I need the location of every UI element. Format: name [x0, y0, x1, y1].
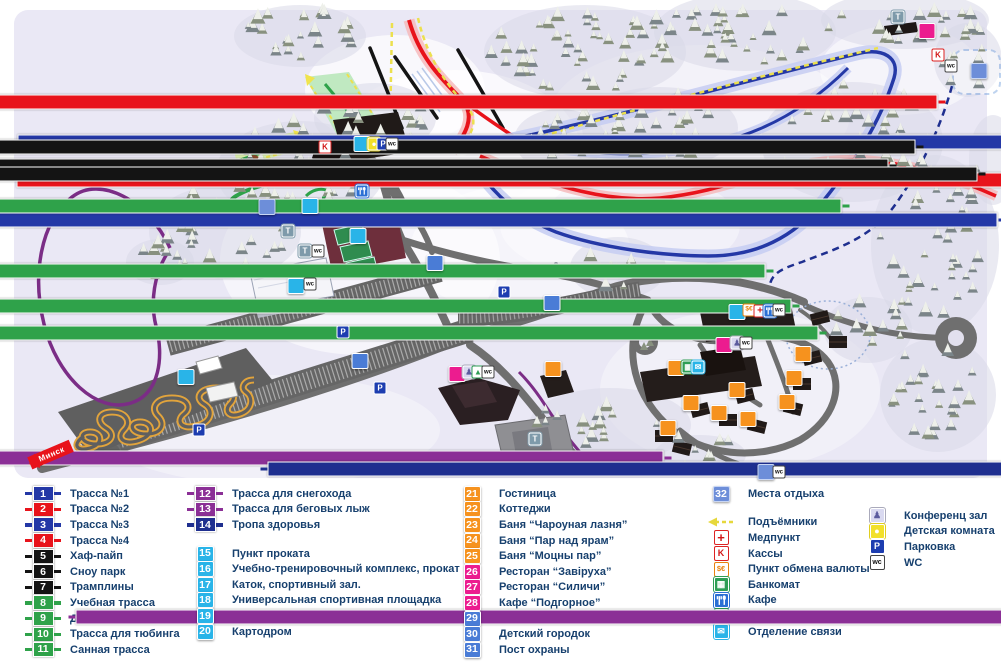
facility-marker-24[interactable]: [660, 420, 677, 436]
facility-marker-18[interactable]: [350, 228, 367, 244]
legend-label: Трасса №3: [70, 519, 129, 531]
legend-marker-number: 25: [466, 551, 478, 562]
park-map-icon[interactable]: P: [498, 286, 511, 299]
legend-label: Коттеджи: [499, 503, 551, 515]
legend-item: 3Трасса №3: [28, 517, 180, 533]
legend-item: 8Учебная трасса: [28, 595, 180, 611]
t-map-icon[interactable]: T: [529, 433, 542, 446]
legend-item: wcWC: [862, 555, 995, 571]
wc-map-icon[interactable]: wc: [482, 366, 495, 379]
legend-label: Медпункт: [748, 532, 801, 544]
legend-column-1: 1Трасса №12Трасса №23Трасса №34Трасса №4…: [28, 486, 180, 658]
legend-item: $€Пункт обмена валюты: [706, 561, 870, 577]
legend-item: +Медпункт: [706, 530, 870, 546]
wc-icon: wc: [482, 366, 495, 379]
facility-marker-22[interactable]: [683, 395, 700, 411]
legend-marker-number: 21: [466, 489, 478, 500]
facility-marker-30[interactable]: [427, 255, 444, 271]
facility-marker-22[interactable]: [779, 394, 796, 410]
legend-marker-number: 13: [199, 504, 211, 515]
legend-item: 17Каток, спортивный зал.: [190, 577, 460, 593]
legend-marker-number: 28: [466, 598, 478, 609]
trail-marker-4[interactable]: [0, 95, 938, 110]
legend-marker-number: 5: [40, 551, 46, 562]
trail-marker-9[interactable]: [0, 264, 766, 279]
legend-marker-number: 24: [466, 535, 478, 546]
wc-icon: wc: [386, 138, 399, 151]
legend-item: ▦Банкомат: [706, 577, 870, 593]
legend-marker-18: 18: [197, 592, 214, 608]
legend-label: Конференц зал: [904, 510, 987, 522]
t-map-icon[interactable]: T: [892, 11, 905, 24]
legend-marker-12: 12: [195, 486, 216, 501]
legend-marker-8: 8: [33, 595, 54, 610]
legend-marker-number: 2: [40, 504, 46, 515]
facility-marker-23[interactable]: [729, 382, 746, 398]
kassa-icon: K: [714, 546, 729, 561]
legend-marker-number: 32: [715, 489, 727, 500]
legend-marker-number: 7: [40, 582, 46, 593]
legend-item: 21Гостиница: [457, 486, 710, 502]
facility-marker-32[interactable]: [971, 63, 988, 79]
cafe-icon: [714, 593, 729, 608]
legend-item: 28Кафе “Подгорное”: [457, 595, 710, 611]
legend-marker-17: 17: [197, 577, 214, 593]
legend-marker-15: 15: [197, 546, 214, 562]
legend-marker-32: 32: [713, 486, 730, 502]
legend-label: Подъёмники: [748, 516, 817, 528]
post-icon: ✉: [692, 361, 705, 374]
wc-map-icon[interactable]: wc: [945, 60, 958, 73]
trail-marker-13[interactable]: [76, 610, 1001, 625]
wc-icon: wc: [740, 337, 753, 350]
wc-icon: wc: [773, 466, 786, 479]
legend-marker-11: 11: [33, 642, 54, 657]
legend-marker-1: 1: [33, 486, 54, 501]
legend-marker-6: 6: [33, 564, 54, 579]
exch-icon: $€: [714, 562, 729, 577]
legend-marker-number: 6: [40, 567, 46, 578]
wc-icon: wc: [773, 304, 786, 317]
park-map-icon[interactable]: P: [193, 424, 206, 437]
facility-marker-19[interactable]: [302, 198, 319, 214]
legend-label: Места отдыха: [748, 488, 824, 500]
legend-label: Баня “Чароуная лазня”: [499, 519, 627, 531]
facility-marker-32[interactable]: [259, 199, 276, 215]
legend-label: Сноу парк: [70, 566, 125, 578]
legend-marker-24: 24: [464, 533, 481, 549]
park-map-icon[interactable]: P: [337, 326, 350, 339]
cafe-icon: [356, 185, 369, 198]
terrain-drawing: [0, 0, 1001, 482]
trail-marker-10[interactable]: [0, 299, 792, 314]
park-icon: P: [374, 382, 387, 395]
legend-marker-16: 16: [197, 561, 214, 577]
trail-marker-14[interactable]: [268, 462, 1001, 477]
legend-item: 32Места отдыха: [706, 486, 870, 502]
legend-marker-number: 1: [40, 489, 46, 500]
legend-marker-27: 27: [464, 579, 481, 595]
facility-marker-29[interactable]: [352, 353, 369, 369]
facility-marker-28[interactable]: [919, 23, 936, 39]
trail-marker-3[interactable]: [0, 213, 998, 228]
conf-icon: ♟: [870, 508, 885, 523]
legend-item: ♟Конференц зал: [862, 508, 995, 524]
legend-label: Универсальная спортивная площадка: [232, 594, 441, 606]
t-icon: T: [892, 11, 905, 24]
legend-item: ✉Отделение связи: [706, 624, 870, 640]
legend-label: Хаф-пайп: [70, 550, 123, 562]
legend-marker-26: 26: [464, 564, 481, 580]
legend-label: Банкомат: [748, 579, 800, 591]
legend-marker-28: 28: [464, 595, 481, 611]
facility-marker-25[interactable]: [545, 361, 562, 377]
legend: 1Трасса №12Трасса №23Трасса №34Трасса №4…: [0, 482, 1001, 663]
legend-label: WC: [904, 557, 922, 569]
legend-marker-number: 8: [40, 598, 46, 609]
legend-label: Кафе “Подгорное”: [499, 597, 600, 609]
t-map-icon[interactable]: T: [299, 245, 312, 258]
legend-marker-25: 25: [464, 548, 481, 564]
legend-marker-30: 30: [464, 626, 481, 642]
legend-marker-13: 13: [195, 502, 216, 517]
kassa-map-icon[interactable]: K: [932, 49, 945, 62]
facility-marker-17[interactable]: [288, 278, 305, 294]
legend-label: Тропа здоровья: [232, 519, 320, 531]
legend-label: Картодром: [232, 626, 292, 638]
legend-label: Парковка: [904, 541, 955, 553]
legend-marker-10: 10: [33, 627, 54, 642]
park-icon: P: [193, 424, 206, 437]
trail-marker-8[interactable]: [0, 199, 842, 214]
legend-marker-number: 17: [199, 580, 211, 591]
wc-map-icon[interactable]: wc: [304, 278, 317, 291]
legend-item: 11Санная трасса: [28, 642, 180, 658]
legend-item: 6Сноу парк: [28, 564, 180, 580]
legend-marker-number: 14: [199, 520, 211, 531]
legend-item: 23Баня “Чароуная лазня”: [457, 517, 710, 533]
legend-label: Отделение связи: [748, 626, 842, 638]
legend-label: Кассы: [748, 548, 783, 560]
legend-marker-number: 20: [199, 626, 211, 637]
legend-marker-number: 10: [37, 629, 49, 640]
cafe-map-icon[interactable]: [356, 185, 369, 198]
legend-label: Санная трасса: [70, 644, 150, 656]
t-icon: T: [282, 225, 295, 238]
legend-marker-number: 19: [199, 611, 211, 622]
trail-marker-7[interactable]: [0, 167, 978, 182]
legend-label: Детский городок: [499, 628, 590, 640]
legend-label: Учебная трасса: [70, 597, 155, 609]
legend-marker-29: 29: [464, 611, 481, 627]
legend-marker-number: 30: [466, 629, 478, 640]
facility-marker-31[interactable]: [544, 295, 561, 311]
park-map-icon[interactable]: P: [374, 382, 387, 395]
wc-map-icon[interactable]: wc: [740, 337, 753, 350]
legend-column-5: ♟Конференц зал●Детская комнатаPПарковкаw…: [862, 508, 995, 570]
legend-item: 25Баня “Моцны пар”: [457, 548, 710, 564]
legend-label: Учебно-тренировочный комплекс, прокат: [232, 563, 460, 575]
bank-icon: ▦: [714, 577, 729, 592]
legend-item: 22Коттеджи: [457, 502, 710, 518]
legend-label: Трасса для беговых лыж: [232, 503, 370, 515]
legend-label: Кафе: [748, 594, 777, 606]
legend-marker-4: 4: [33, 533, 54, 548]
legend-item: 18Универсальная спортивная площадка: [190, 593, 460, 609]
legend-label: Трамплины: [70, 581, 134, 593]
park-icon: P: [337, 326, 350, 339]
legend-item: 26Ресторан “Завіруха”: [457, 564, 710, 580]
legend-marker-number: 11: [37, 644, 48, 655]
legend-item: 27Ресторан “Силичи”: [457, 580, 710, 596]
post-map-icon[interactable]: ✉: [692, 361, 705, 374]
legend-marker-2: 2: [33, 502, 54, 517]
legend-item: Подъёмники: [706, 515, 870, 531]
wc-map-icon[interactable]: wc: [312, 245, 325, 258]
legend-item: Кафе: [706, 593, 870, 609]
legend-item: 4Трасса №4: [28, 533, 180, 549]
legend-item: 16Учебно-тренировочный комплекс, прокат: [190, 561, 460, 577]
wc-map-icon[interactable]: wc: [773, 304, 786, 317]
legend-item: PПарковка: [862, 539, 995, 555]
wc-icon: wc: [304, 278, 317, 291]
legend-item: 10Трасса для тюбинга: [28, 626, 180, 642]
legend-marker-21: 21: [464, 486, 481, 502]
legend-item: 24Баня “Пар над ярам”: [457, 533, 710, 549]
legend-marker-number: 15: [199, 548, 211, 559]
legend-marker-23: 23: [464, 517, 481, 533]
legend-item: 12Трасса для снегохода: [190, 486, 460, 502]
legend-marker-number: 31: [466, 644, 478, 655]
lift-icon: [708, 516, 734, 528]
legend-label: Ресторан “Завіруха”: [499, 566, 612, 578]
legend-label: Трасса №2: [70, 503, 129, 515]
legend-label: Ресторан “Силичи”: [499, 581, 605, 593]
legend-marker-number: 16: [199, 564, 211, 575]
facility-marker-22[interactable]: [786, 370, 803, 386]
legend-item: 13Трасса для беговых лыж: [190, 502, 460, 518]
legend-marker-number: 29: [466, 613, 478, 624]
legend-marker-14: 14: [195, 517, 216, 532]
legend-marker-20: 20: [197, 624, 214, 640]
legend-marker-number: 26: [466, 567, 478, 578]
trail-marker-5[interactable]: [0, 140, 916, 155]
facility-marker-20[interactable]: [178, 369, 195, 385]
post-icon: ✉: [714, 624, 729, 639]
wc-map-icon[interactable]: wc: [386, 138, 399, 151]
wc-icon: wc: [945, 60, 958, 73]
park-icon: P: [498, 286, 511, 299]
legend-label: Трасса для снегохода: [232, 488, 351, 500]
legend-label: Трасса для тюбинга: [70, 628, 180, 640]
kassa-icon: K: [932, 49, 945, 62]
ski-resort-map-page: PPPPKKTTwcwcTTwcwc●Pwc$€+wc♟wc▦✉♟▲wc Мин…: [0, 0, 1001, 663]
resort-map: PPPPKKTTwcwcTTwcwc●Pwc$€+wc♟wc▦✉♟▲wc Мин…: [0, 0, 1001, 482]
wc-icon: wc: [312, 245, 325, 258]
wc-map-icon[interactable]: wc: [773, 466, 786, 479]
legend-item: 14Тропа здоровья: [190, 517, 460, 533]
legend-label: Баня “Пар над ярам”: [499, 535, 614, 547]
legend-item: 15Пункт проката: [190, 546, 460, 562]
legend-label: Баня “Моцны пар”: [499, 550, 601, 562]
legend-marker-number: 4: [40, 535, 46, 546]
legend-marker-number: 22: [466, 504, 478, 515]
legend-label: Трасса №1: [70, 488, 129, 500]
legend-label: Гостиница: [499, 488, 556, 500]
legend-item: ●Детская комната: [862, 524, 995, 540]
trail-marker-11[interactable]: [0, 326, 819, 341]
legend-marker-7: 7: [33, 580, 54, 595]
kids-icon: ●: [870, 524, 885, 539]
legend-item: 2Трасса №2: [28, 502, 180, 518]
legend-label: Пункт обмена валюты: [748, 563, 870, 575]
legend-marker-22: 22: [464, 501, 481, 517]
legend-label: Детская комната: [904, 525, 995, 537]
legend-item: 30Детский городок: [457, 626, 710, 642]
legend-item: KКассы: [706, 546, 870, 562]
legend-column-3: 21Гостиница22Коттеджи23Баня “Чароуная ла…: [457, 486, 710, 658]
legend-marker-number: 12: [199, 489, 211, 500]
legend-item: 1Трасса №1: [28, 486, 180, 502]
facility-marker-22[interactable]: [711, 405, 728, 421]
legend-label: Пункт проката: [232, 548, 310, 560]
park-icon: P: [870, 539, 885, 554]
wc-icon: wc: [870, 555, 885, 570]
facility-marker-22[interactable]: [740, 411, 757, 427]
legend-marker-31: 31: [464, 642, 481, 658]
t-icon: T: [299, 245, 312, 258]
t-map-icon[interactable]: T: [282, 225, 295, 238]
kassa-map-icon[interactable]: K: [319, 141, 332, 154]
legend-marker-number: 23: [466, 520, 478, 531]
legend-marker-3: 3: [33, 517, 54, 532]
legend-item: 7Трамплины: [28, 580, 180, 596]
facility-marker-22[interactable]: [795, 346, 812, 362]
med-icon: +: [714, 530, 729, 545]
legend-marker-5: 5: [33, 549, 54, 564]
legend-marker-9: 9: [33, 611, 54, 626]
legend-item: 31Пост охраны: [457, 642, 710, 658]
legend-marker-number: 18: [199, 595, 211, 606]
kassa-icon: K: [319, 141, 332, 154]
legend-marker-number: 27: [466, 582, 478, 593]
legend-marker-number: 3: [40, 520, 46, 531]
t-icon: T: [529, 433, 542, 446]
legend-item: 20Картодром: [190, 624, 460, 640]
legend-item: 5Хаф-пайп: [28, 548, 180, 564]
legend-label: Трасса №4: [70, 535, 129, 547]
legend-marker-19: 19: [197, 608, 214, 624]
legend-label: Каток, спортивный зал.: [232, 579, 361, 591]
legend-marker-number: 9: [40, 613, 46, 624]
legend-label: Пост охраны: [499, 644, 569, 656]
